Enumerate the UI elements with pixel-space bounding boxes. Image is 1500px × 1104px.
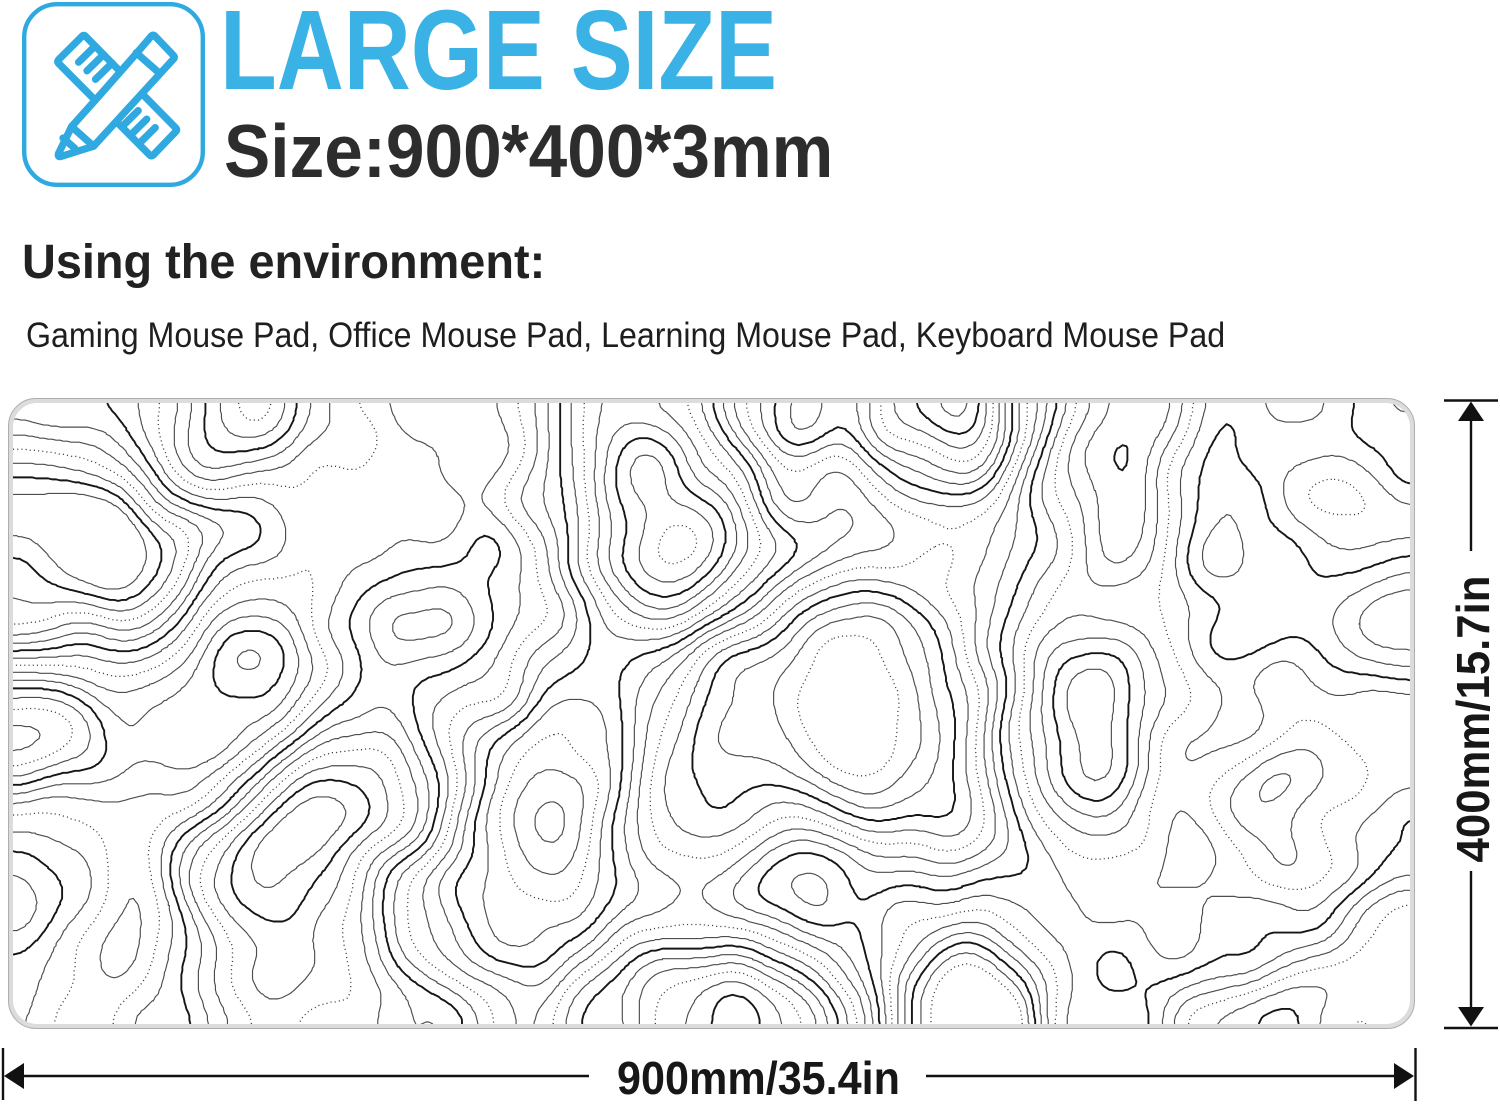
svg-text:400mm/15.7in: 400mm/15.7in: [1447, 576, 1499, 863]
svg-text:900mm/35.4in: 900mm/35.4in: [617, 1054, 900, 1104]
